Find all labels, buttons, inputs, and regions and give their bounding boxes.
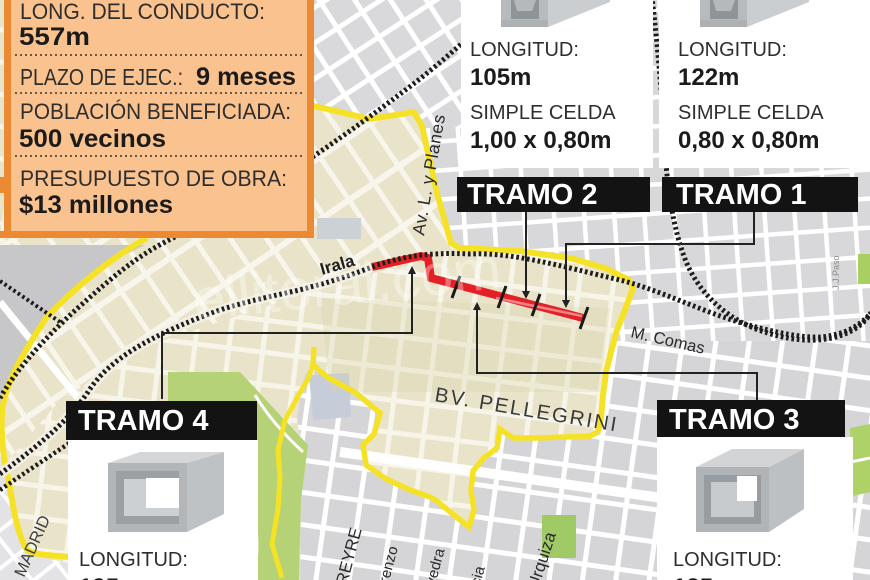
svg-text:9 meses: 9 meses bbox=[196, 63, 296, 91]
svg-text:105m: 105m bbox=[470, 64, 531, 91]
svg-text:PRESUPUESTO DE OBRA:: PRESUPUESTO DE OBRA: bbox=[20, 166, 287, 191]
svg-text:LONGITUD:: LONGITUD: bbox=[79, 549, 188, 571]
svg-text:$13 millones: $13 millones bbox=[19, 191, 173, 219]
svg-text:TRAMO 4: TRAMO 4 bbox=[78, 405, 209, 437]
svg-text:0,80 x 0,80m: 0,80 x 0,80m bbox=[678, 127, 819, 154]
svg-text:PLAZO DE EJEC.:: PLAZO DE EJEC.: bbox=[20, 64, 183, 90]
svg-text:TRAMO 3: TRAMO 3 bbox=[669, 404, 800, 436]
svg-text:TRAMO 2: TRAMO 2 bbox=[467, 179, 598, 211]
svg-text:TRAMO 1: TRAMO 1 bbox=[676, 179, 807, 211]
svg-text:557m: 557m bbox=[19, 23, 90, 51]
svg-text:195m: 195m bbox=[79, 574, 140, 580]
svg-text:SIMPLE CELDA: SIMPLE CELDA bbox=[678, 102, 824, 124]
svg-text:500 vecinos: 500 vecinos bbox=[19, 125, 166, 153]
svg-text:LONGITUD:: LONGITUD: bbox=[673, 549, 782, 571]
svg-text:122m: 122m bbox=[678, 64, 739, 91]
svg-text:POBLACIÓN BENEFICIADA:: POBLACIÓN BENEFICIADA: bbox=[20, 99, 291, 124]
svg-text:1,00 x 0,80m: 1,00 x 0,80m bbox=[470, 127, 611, 154]
svg-text:LONG. DEL CONDUCTO:: LONG. DEL CONDUCTO: bbox=[20, 0, 265, 24]
svg-text:135m: 135m bbox=[673, 574, 734, 580]
svg-text:LONGITUD:: LONGITUD: bbox=[470, 39, 579, 61]
svg-text:LONGITUD:: LONGITUD: bbox=[678, 39, 787, 61]
svg-text:SIMPLE CELDA: SIMPLE CELDA bbox=[470, 102, 616, 124]
svg-text:J.J.Paso: J.J.Paso bbox=[831, 255, 841, 290]
